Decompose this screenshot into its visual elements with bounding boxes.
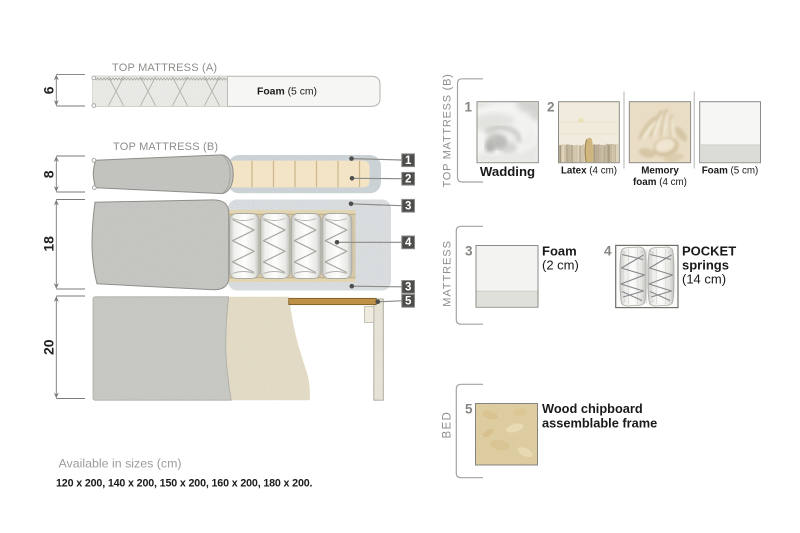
svg-text:Foam: Foam — [542, 244, 577, 259]
svg-text:1: 1 — [405, 155, 412, 167]
svg-text:18: 18 — [40, 236, 56, 252]
svg-text:(14 cm): (14 cm) — [682, 272, 726, 287]
svg-text:3: 3 — [405, 201, 411, 213]
svg-text:POCKET: POCKET — [682, 244, 736, 259]
svg-text:4: 4 — [405, 237, 412, 249]
svg-text:4: 4 — [604, 244, 612, 259]
svg-text:Available in sizes (cm): Available in sizes (cm) — [59, 457, 182, 471]
svg-text:3: 3 — [405, 282, 411, 294]
svg-text:Memory: Memory — [641, 166, 679, 177]
svg-text:Latex (4 cm): Latex (4 cm) — [561, 166, 617, 177]
svg-text:BED: BED — [442, 411, 454, 439]
svg-text:2: 2 — [405, 174, 411, 186]
svg-text:Wood chipboard: Wood chipboard — [542, 401, 643, 416]
svg-text:20: 20 — [40, 339, 56, 355]
svg-text:Foam (5 cm): Foam (5 cm) — [257, 87, 317, 98]
svg-text:assemblable frame: assemblable frame — [542, 416, 657, 431]
svg-text:5: 5 — [465, 402, 473, 417]
svg-text:5: 5 — [405, 296, 412, 308]
svg-text:TOP MATTRESS (A): TOP MATTRESS (A) — [112, 62, 217, 74]
svg-text:(2 cm): (2 cm) — [542, 258, 579, 273]
svg-text:foam (4 cm): foam (4 cm) — [633, 177, 687, 188]
svg-text:Wadding: Wadding — [480, 164, 535, 179]
svg-text:Foam (5 cm): Foam (5 cm) — [702, 166, 759, 177]
svg-text:2: 2 — [547, 100, 555, 115]
svg-text:6: 6 — [40, 86, 56, 94]
svg-text:1: 1 — [464, 100, 472, 115]
svg-text:TOP MATTRESS (B): TOP MATTRESS (B) — [113, 141, 218, 153]
svg-text:3: 3 — [465, 244, 473, 259]
svg-text:120 x 200, 140 x 200, 150 x 20: 120 x 200, 140 x 200, 150 x 200, 160 x 2… — [56, 478, 313, 490]
svg-text:8: 8 — [40, 170, 56, 178]
svg-text:TOP MATTRESS (B): TOP MATTRESS (B) — [442, 73, 454, 187]
svg-text:springs: springs — [682, 258, 729, 273]
svg-text:MATTRESS: MATTRESS — [442, 240, 454, 307]
